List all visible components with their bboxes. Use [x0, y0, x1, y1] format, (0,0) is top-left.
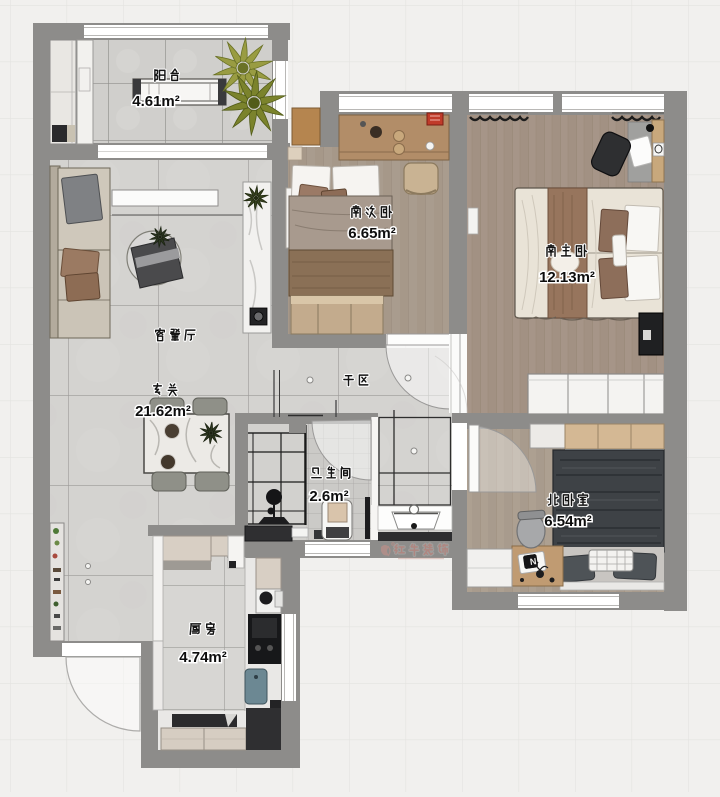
- svg-text:21.62m²: 21.62m²: [135, 403, 191, 420]
- svg-text:12.13m²: 12.13m²: [539, 269, 595, 286]
- svg-text:6.65m²: 6.65m²: [348, 225, 396, 242]
- svg-text:2.6m²: 2.6m²: [309, 488, 348, 505]
- svg-text:6.54m²: 6.54m²: [544, 513, 592, 530]
- svg-text:4.74m²: 4.74m²: [179, 649, 227, 666]
- svg-text:N: N: [529, 556, 537, 567]
- svg-text:4.61m²: 4.61m²: [132, 93, 180, 110]
